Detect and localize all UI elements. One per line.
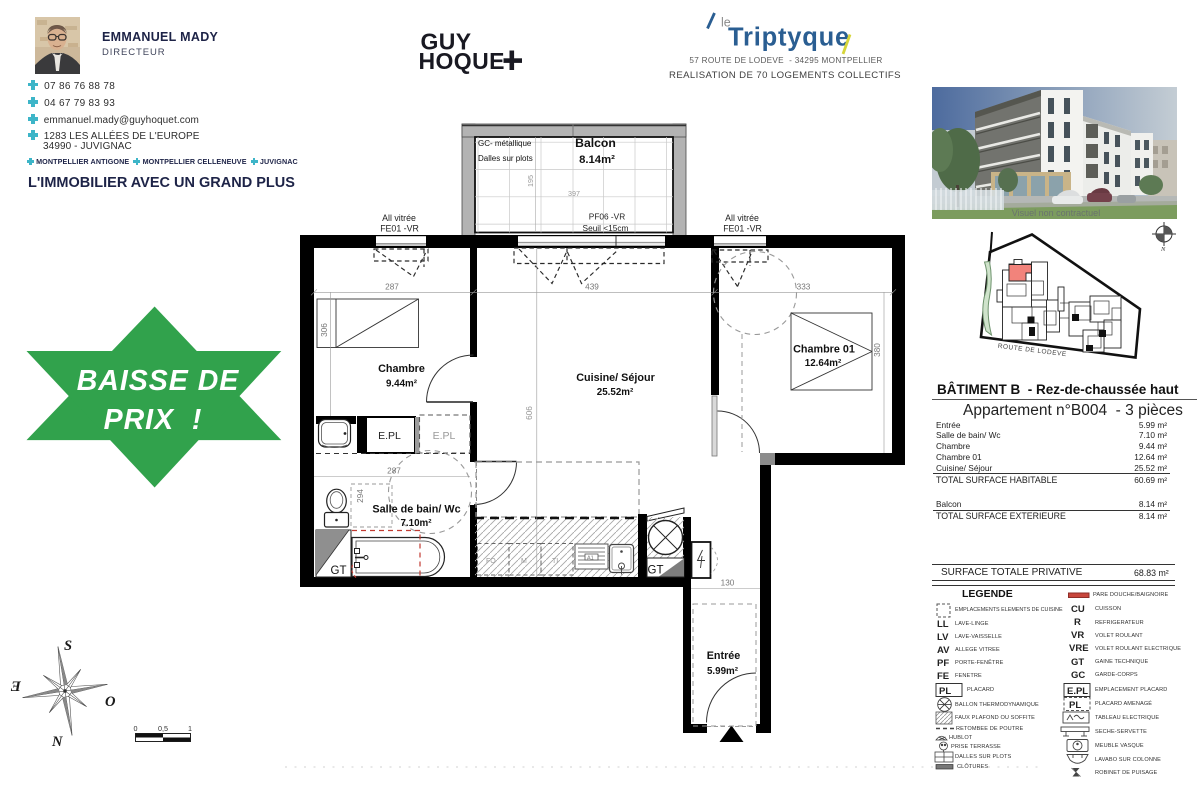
svg-text:GT: GT xyxy=(648,565,664,577)
svg-text:287: 287 xyxy=(385,283,399,292)
svg-text:All vitrée: All vitrée xyxy=(382,213,416,223)
svg-text:N: N xyxy=(1160,246,1166,253)
svg-text:O: O xyxy=(105,694,116,710)
svg-text:397: 397 xyxy=(568,189,580,198)
svg-text:294: 294 xyxy=(356,489,365,503)
svg-text:PL: PL xyxy=(939,686,951,697)
svg-text:Visuel non contractuel: Visuel non contractuel xyxy=(1012,208,1100,218)
svg-text:FE01 -VR: FE01 -VR xyxy=(723,224,762,234)
svg-text:5.99m²: 5.99m² xyxy=(707,666,739,677)
svg-text:Dalles sur plots: Dalles sur plots xyxy=(478,154,533,163)
svg-text:333: 333 xyxy=(797,283,811,292)
svg-text:195: 195 xyxy=(526,175,535,187)
svg-text:287: 287 xyxy=(387,467,401,476)
svg-text:0: 0 xyxy=(134,724,138,733)
svg-text:9.44m²: 9.44m² xyxy=(386,379,418,390)
svg-text:439: 439 xyxy=(585,283,599,292)
svg-text:Balcon: Balcon xyxy=(575,136,616,150)
svg-text:25.52m²: 25.52m² xyxy=(597,387,634,398)
svg-text:Entrée: Entrée xyxy=(707,650,741,662)
svg-text:S: S xyxy=(64,638,72,654)
svg-text:1: 1 xyxy=(188,724,192,733)
svg-text:PL: PL xyxy=(1069,700,1081,711)
svg-text:BAISSE DE: BAISSE DE xyxy=(77,365,240,397)
svg-text:FE01 -VR: FE01 -VR xyxy=(380,224,419,234)
svg-text:M: M xyxy=(521,558,527,565)
svg-text:Chambre 01: Chambre 01 xyxy=(793,344,855,356)
svg-text:E.PL: E.PL xyxy=(433,430,456,442)
svg-text:12.64m²: 12.64m² xyxy=(805,358,842,369)
svg-text:GT: GT xyxy=(331,565,347,577)
svg-text:Salle de bain/ Wc: Salle de bain/ Wc xyxy=(372,504,460,516)
svg-text:Ǝ: Ǝ xyxy=(10,679,22,695)
svg-text:606: 606 xyxy=(525,406,534,420)
svg-text:PRIX !: PRIX ! xyxy=(104,404,203,436)
svg-text:All vitrée: All vitrée xyxy=(725,213,759,223)
svg-text:GC- métallique: GC- métallique xyxy=(478,139,532,148)
svg-text:TI: TI xyxy=(552,558,558,565)
svg-text:8.14m²: 8.14m² xyxy=(579,154,615,166)
svg-text:380: 380 xyxy=(873,343,882,357)
svg-text:A1: A1 xyxy=(587,556,594,562)
svg-text:E.PL: E.PL xyxy=(378,430,401,442)
svg-text:306: 306 xyxy=(320,323,329,337)
svg-text:Chambre: Chambre xyxy=(378,363,425,375)
svg-text:Seuil <15cm: Seuil <15cm xyxy=(583,223,629,233)
svg-text:E.PL: E.PL xyxy=(1067,686,1088,697)
svg-text:7.10m²: 7.10m² xyxy=(400,518,432,529)
svg-text:130: 130 xyxy=(721,579,735,588)
svg-text:Cuisine/ Séjour: Cuisine/ Séjour xyxy=(576,372,655,384)
svg-text:FO: FO xyxy=(486,558,496,565)
svg-text:0,5: 0,5 xyxy=(158,724,168,733)
svg-text:PF06 -VR: PF06 -VR xyxy=(589,212,625,222)
svg-text:N: N xyxy=(51,734,63,750)
